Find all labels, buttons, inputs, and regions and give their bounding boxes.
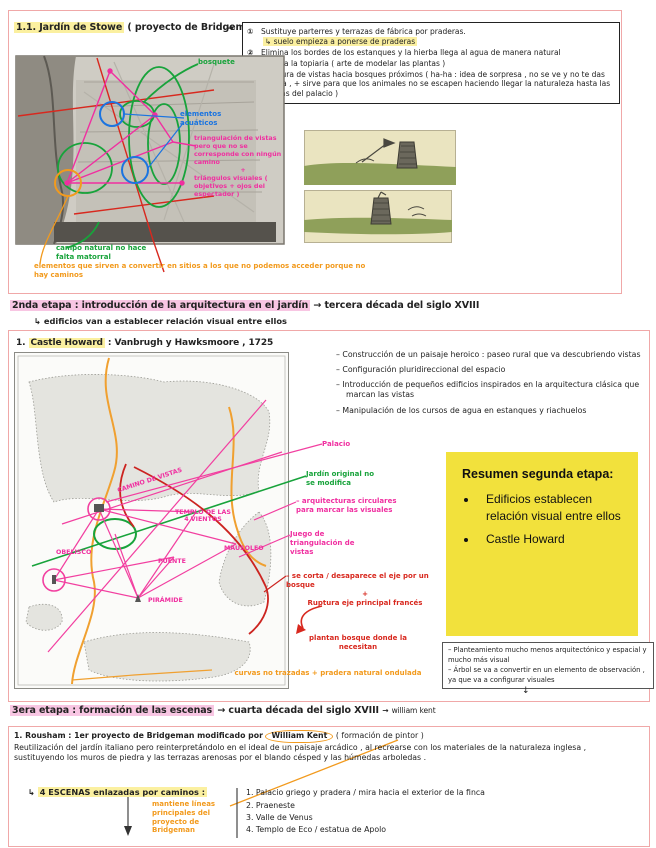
label-palacio: Palacio [322,440,350,449]
map-label-piramide: PIRÁMIDE [148,597,183,604]
red-note-line1: – se corta / desaparece el eje por un bo… [286,572,444,590]
rule-text: Apertura de vistas hacia bosques próximo… [261,70,613,100]
escena-item-3: 3. Valle de Venus [246,813,313,823]
gray-note-item: – Planteamiento mucho menos arquitectóni… [448,646,648,666]
haha-sketch-1 [304,130,456,185]
rule-number: ① [247,27,257,47]
label-elementos-acuaticos: elementos acuáticos [180,110,236,128]
section3-heading-highlight: 3era etapa : formación de las escenas [10,705,214,716]
section3-kent: william kent [392,706,436,715]
section2-heading: 2nda etapa : introducción de la arquitec… [10,300,479,311]
red-curved-arrow [292,604,326,636]
gray-note-item: – Árbol se va a convertir en un elemento… [448,666,648,686]
notes-page: 1.1. Jardín de Stowe ( proyecto de Bridg… [0,0,656,848]
bullet-item: – Introducción de pequeños edificios ins… [336,380,648,400]
red-note-block: – se corta / desaparece el eje por un bo… [286,572,444,608]
map-label-obelisco: OBELISCO [56,549,91,556]
escenas-heading-highlight: 4 ESCENAS enlazadas por caminos : [38,787,207,797]
haha-sketch-2 [304,190,452,243]
escenas-arrow: ↳ [28,787,35,797]
label-triangulacion: triangulación de vistas pero que no se c… [194,134,292,198]
escena-item-4: 4. Templo de Eco / estatua de Apolo [246,825,386,835]
label-jardin-original: Jardín original no se modifica [306,470,378,488]
resumen-box: Resumen segunda etapa: Edificios estable… [446,452,638,636]
castle-howard-title: 1. Castle Howard : Vanbrugh y Hawksmoore… [16,338,273,348]
label-triangulos-visuales: triángulos visuales ( objetivos + ojos d… [194,174,292,198]
label-mantiene-lineas: mantiene líneas principales del proyecto… [152,800,234,835]
section3-arrow2: → [382,706,388,715]
label-juego-triangulacion: Juego de triangulación de vistas [290,530,368,556]
section3-arrow1: → [217,705,225,716]
gray-note-box: – Planteamiento mucho menos arquitectóni… [442,642,654,689]
label-curvas: curvas no trazadas + pradera natural ond… [214,669,442,678]
rule-item: ① Sustituye parterres y terrazas de fábr… [247,27,613,47]
resumen-item: Castle Howard [478,531,626,548]
escenas-heading: ↳ 4 ESCENAS enlazadas por caminos : [28,787,207,798]
rousham-description: Reutilización del jardín italiano pero r… [14,743,638,764]
rousham-intro: 1. Rousham : 1er proyecto de Bridgeman m… [14,731,263,740]
rule-subnote: ↳ suelo empieza a ponerse de praderas [263,37,417,46]
label-arquitecturas: – arquitecturas circulares para marcar l… [296,497,414,515]
red-note-line3: plantan bosque donde la necesitan [302,634,414,652]
rule-text: Sustituye parterres y terrazas de fábric… [261,27,466,36]
gray-box-down-arrow: ↓ [522,686,530,696]
william-kent-circled: William Kent [265,730,333,743]
rousham-paragraph: 1. Rousham : 1er proyecto de Bridgeman m… [14,730,638,764]
castle-howard-name: Castle Howard [29,338,105,348]
section3-heading-mid: cuarta década del siglo XVIII [228,705,379,716]
label-bosquete: bosquete [198,58,235,67]
map-label-puente: PUENTE [158,558,186,565]
label-nota-naranja: elementos que sirven a convertir en siti… [34,262,374,280]
plus-sign: + [194,166,292,174]
section1-title-highlight: 1.1. Jardín de Stowe [14,22,124,33]
section2-subnote: ↳ edificios van a establecer relación vi… [34,316,287,327]
section3-heading: 3era etapa : formación de las escenas → … [10,705,436,716]
bullet-item: – Configuración pluridireccional del esp… [336,365,648,375]
label-triangulacion-text: triangulación de vistas pero que no se c… [194,134,292,166]
rousham-kent-note: ( formación de pintor ) [336,731,424,740]
castle-howard-number: 1. [16,338,25,348]
section2-heading-arrow: → [313,300,321,311]
section2-heading-rest: tercera década del siglo XVIII [324,300,479,311]
section2-heading-highlight: 2nda etapa : introducción de la arquitec… [10,300,310,311]
bullet-item: – Manipulación de los cursos de agua en … [336,406,648,416]
resumen-list: Edificios establecen relación visual ent… [458,491,626,547]
bullet-item: – Construcción de un paisaje heroico : p… [336,350,648,360]
resumen-title: Resumen segunda etapa: [462,467,626,481]
red-note-plus: + [286,590,444,599]
escena-item-2: 2. Praeneste [246,801,295,811]
castle-howard-bullets: – Construcción de un paisaje heroico : p… [336,350,648,421]
arrow-to-rules: → [226,24,234,34]
resumen-item: Edificios establecen relación visual ent… [478,491,626,525]
label-campo-natural: campo natural no hace falta matorral [56,244,166,262]
castle-howard-architects: : Vanbrugh y Hawksmoore , 1725 [108,338,273,348]
escena-item-1: 1. Palacio griego y pradera / mira hacia… [246,788,642,798]
map-label-mausoleo: MAUSOLEO [224,545,264,552]
map-label-templo: TEMPLO DE LAS 4 VIENTOS [174,509,232,523]
